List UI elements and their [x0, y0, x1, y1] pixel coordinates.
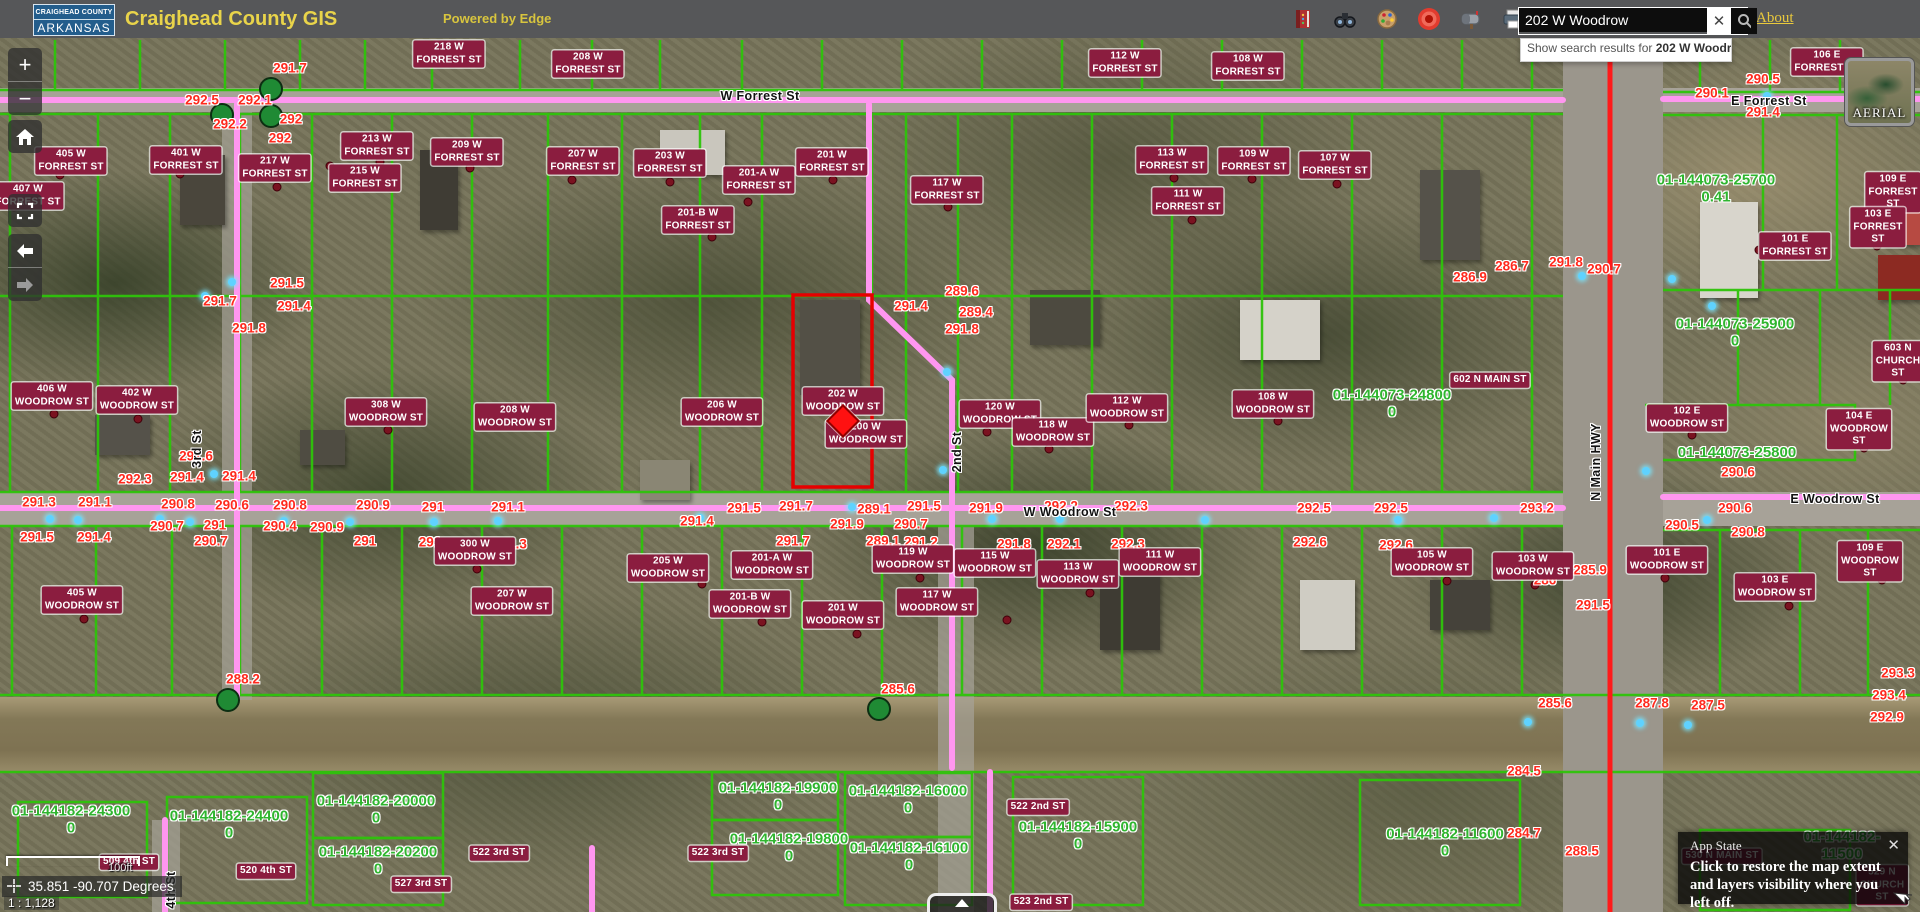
suggestion-prefix: Show search results for	[1527, 41, 1656, 55]
app-state-panel[interactable]: App State ✕ Click to restore the map ext…	[1678, 832, 1908, 904]
basemap-label: AERIAL	[1848, 105, 1911, 121]
scale-ratio: 1 : 1,128	[4, 896, 59, 910]
header-bar: CRAIGHEAD COUNTY ARKANSAS Craighead Coun…	[0, 0, 1920, 38]
fullscreen-button[interactable]	[8, 194, 42, 227]
forward-button[interactable]	[8, 268, 42, 301]
parcel-boundaries-layer	[0, 0, 1920, 912]
home-icon	[15, 128, 35, 146]
coordinates-display: 35.851 -90.707 Degrees	[2, 876, 182, 897]
county-logo: CRAIGHEAD COUNTY ARKANSAS	[33, 4, 115, 36]
search-suggestion-item[interactable]: Show search results for 202 W Woodr...	[1520, 38, 1732, 62]
history-nav-group	[8, 234, 42, 301]
crosshair-icon	[6, 878, 22, 894]
binoculars-search-icon[interactable]	[1330, 4, 1360, 34]
zoom-control-group: + −	[8, 48, 42, 115]
app-title: Craighead County GIS	[125, 8, 337, 31]
back-button[interactable]	[8, 234, 42, 267]
search-input[interactable]	[1519, 8, 1707, 32]
expand-panel-button[interactable]	[927, 893, 997, 912]
forward-arrow-icon	[15, 277, 35, 293]
coordinates-text: 35.851 -90.707 Degrees	[28, 879, 174, 894]
app-state-close-icon[interactable]: ✕	[1887, 836, 1900, 854]
app-state-message: Click to restore the map extent and laye…	[1690, 858, 1898, 912]
zoom-in-button[interactable]: +	[8, 48, 42, 81]
basemap-toggle[interactable]: AERIAL	[1845, 58, 1914, 126]
fullscreen-control-group	[8, 194, 42, 227]
logo-line2: ARKANSAS	[34, 19, 114, 34]
back-arrow-icon	[15, 243, 35, 259]
search-clear-button[interactable]: ✕	[1707, 8, 1731, 34]
mouse-cursor	[1893, 890, 1913, 912]
locate-target-icon[interactable]	[1414, 4, 1444, 34]
logo-line1: CRAIGHEAD COUNTY	[34, 9, 114, 16]
home-button[interactable]	[8, 120, 42, 153]
search-box: ✕	[1518, 7, 1748, 35]
highlight-parcel[interactable]	[793, 295, 872, 487]
legend-book-icon[interactable]	[1288, 4, 1318, 34]
app-state-title: App State	[1690, 838, 1908, 854]
fullscreen-icon	[16, 202, 34, 220]
about-link[interactable]: About	[1756, 10, 1794, 27]
mailbox-icon[interactable]	[1456, 4, 1486, 34]
draw-palette-icon[interactable]	[1372, 4, 1402, 34]
zoom-out-button[interactable]: −	[8, 82, 42, 115]
up-arrow-icon	[955, 899, 969, 907]
scale-label: 100ft	[108, 862, 132, 874]
powered-by-label: Powered by Edge	[443, 11, 551, 26]
search-icon	[1737, 13, 1751, 29]
application-window: 218 W FORREST ST208 W FORREST ST112 W FO…	[0, 0, 1920, 912]
home-control-group	[8, 120, 42, 153]
suggestion-term: 202 W Woodr...	[1656, 41, 1732, 55]
search-submit-button[interactable]	[1731, 8, 1757, 34]
